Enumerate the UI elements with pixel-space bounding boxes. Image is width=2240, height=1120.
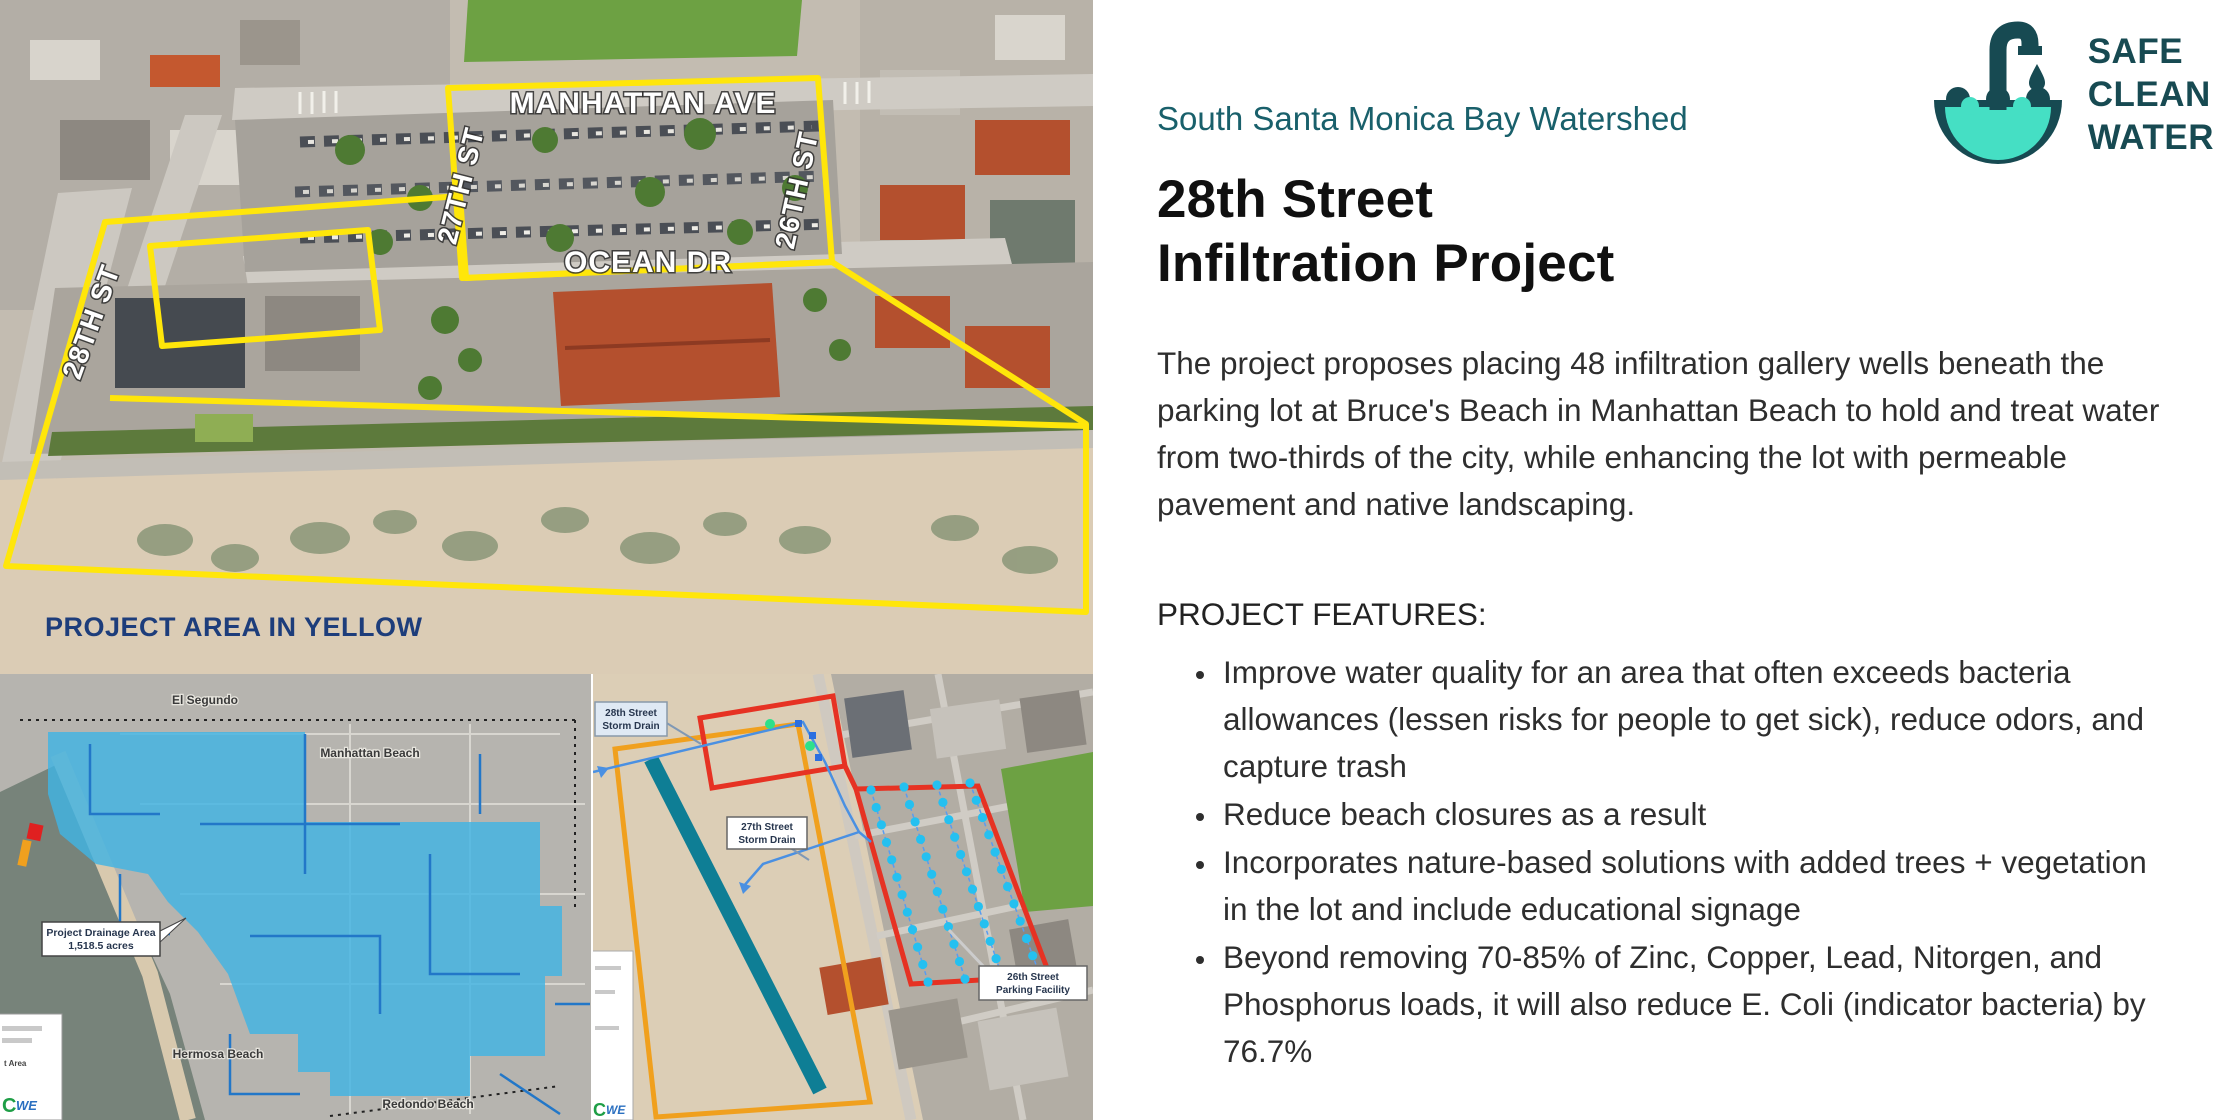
- logo-wordmark: SAFE CLEAN WATER: [2088, 30, 2214, 159]
- safe-clean-water-logo: SAFE CLEAN WATER: [1928, 14, 2214, 174]
- project-description: The project proposes placing 48 infiltra…: [1157, 340, 2172, 528]
- project-area-caption: PROJECT AREA IN YELLOW: [45, 612, 423, 642]
- logo-word-clean: CLEAN: [2088, 75, 2211, 114]
- label-manhattan-beach: Manhattan Beach: [320, 746, 419, 760]
- drainage-map-svg: El Segundo Manhattan Beach Hermosa Beach…: [0, 674, 591, 1120]
- safe-clean-water-umbrella-icon: [1928, 14, 2070, 174]
- feature-item: Beyond removing 70-85% of Zinc, Copper, …: [1219, 934, 2179, 1075]
- label-redondo-beach: Redondo Beach: [382, 1097, 473, 1111]
- svg-text:27th Street: 27th Street: [741, 822, 793, 833]
- feature-item: Improve water quality for an area that o…: [1219, 649, 2179, 790]
- street-label-ocean-dr: OCEAN DR: [564, 246, 732, 279]
- drainage-legend-box: t Area C WE: [0, 1014, 62, 1120]
- page: MANHATTAN AVE 27TH ST 26TH ST OCEAN DR 2…: [0, 0, 2240, 1120]
- page-title: 28th Street Infiltration Project: [1157, 168, 2180, 296]
- legend-partial-text: t Area: [4, 1059, 27, 1068]
- title-line-2: Infiltration Project: [1157, 234, 1614, 293]
- feature-item: Reduce beach closures as a result: [1219, 791, 2179, 838]
- cwe-logo-we: WE: [16, 1098, 37, 1113]
- features-heading: PROJECT FEATURES:: [1157, 596, 2180, 633]
- street-label-manhattan-ave: MANHATTAN AVE: [510, 87, 777, 120]
- svg-text:28th Street: 28th Street: [605, 708, 657, 719]
- site-map-image: 28th Street Storm Drain 27th Street Stor…: [593, 674, 1093, 1120]
- label-el-segundo: El Segundo: [172, 693, 238, 707]
- features-list: Improve water quality for an area that o…: [1157, 649, 2179, 1075]
- feature-item: Incorporates nature-based solutions with…: [1219, 839, 2179, 933]
- aerial-map-image: MANHATTAN AVE 27TH ST 26TH ST OCEAN DR 2…: [0, 0, 1093, 674]
- svg-text:Storm Drain: Storm Drain: [738, 835, 795, 846]
- svg-text:Storm Drain: Storm Drain: [602, 721, 659, 732]
- site-legend-box: C WE: [593, 951, 633, 1120]
- cwe-logo-we: WE: [606, 1103, 626, 1117]
- info-panel: SAFE CLEAN WATER South Santa Monica Bay …: [1093, 0, 2240, 1120]
- title-line-1: 28th Street: [1157, 170, 1433, 229]
- label-hermosa-beach: Hermosa Beach: [173, 1047, 264, 1061]
- drainage-map-image: El Segundo Manhattan Beach Hermosa Beach…: [0, 674, 591, 1120]
- cwe-logo-c: C: [2, 1095, 16, 1117]
- svg-text:Project Drainage Area: Project Drainage Area: [46, 927, 155, 939]
- site-map-svg: 28th Street Storm Drain 27th Street Stor…: [593, 674, 1093, 1120]
- svg-text:1,518.5 acres: 1,518.5 acres: [68, 940, 134, 952]
- logo-word-water: WATER: [2088, 118, 2214, 157]
- logo-word-safe: SAFE: [2088, 32, 2183, 71]
- aerial-map-svg: MANHATTAN AVE 27TH ST 26TH ST OCEAN DR 2…: [0, 0, 1093, 674]
- svg-text:26th Street: 26th Street: [1007, 972, 1059, 983]
- map-column: MANHATTAN AVE 27TH ST 26TH ST OCEAN DR 2…: [0, 0, 1093, 1120]
- svg-text:Parking Facility: Parking Facility: [996, 985, 1070, 996]
- cwe-logo-c: C: [593, 1100, 606, 1120]
